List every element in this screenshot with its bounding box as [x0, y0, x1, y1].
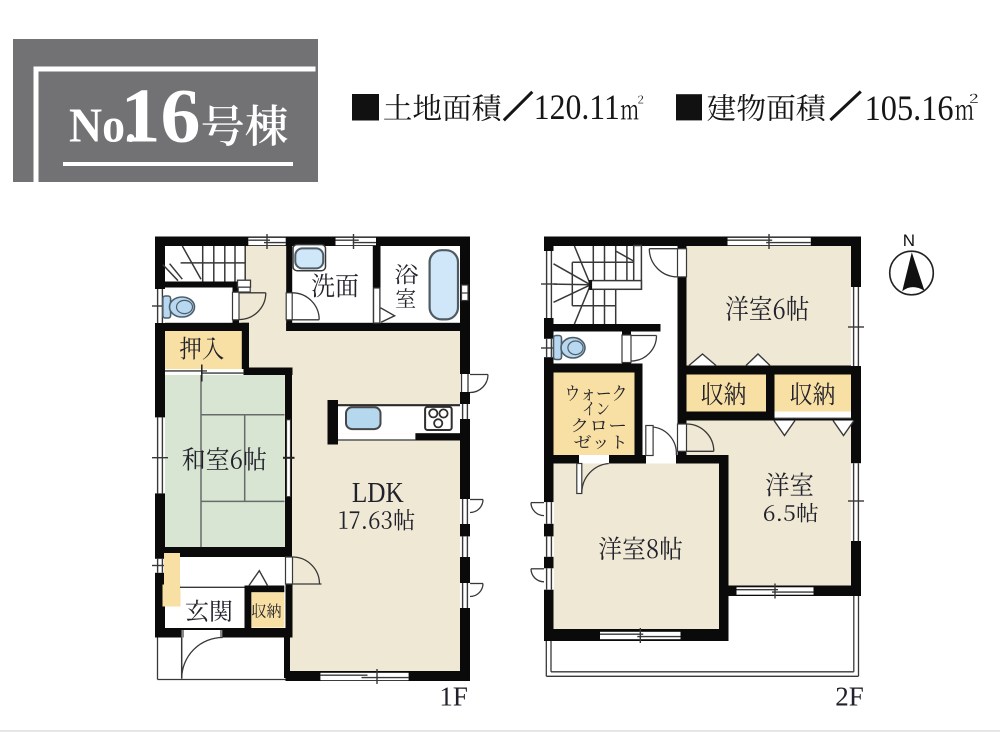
svg-text:2F: 2F: [835, 681, 864, 711]
svg-text:105.16: 105.16: [865, 88, 954, 128]
svg-text:16: 16: [121, 72, 201, 158]
svg-text:N: N: [903, 231, 915, 250]
svg-text:LDK: LDK: [352, 478, 404, 509]
svg-text:120.11: 120.11: [534, 87, 620, 127]
svg-text:1F: 1F: [439, 681, 468, 711]
